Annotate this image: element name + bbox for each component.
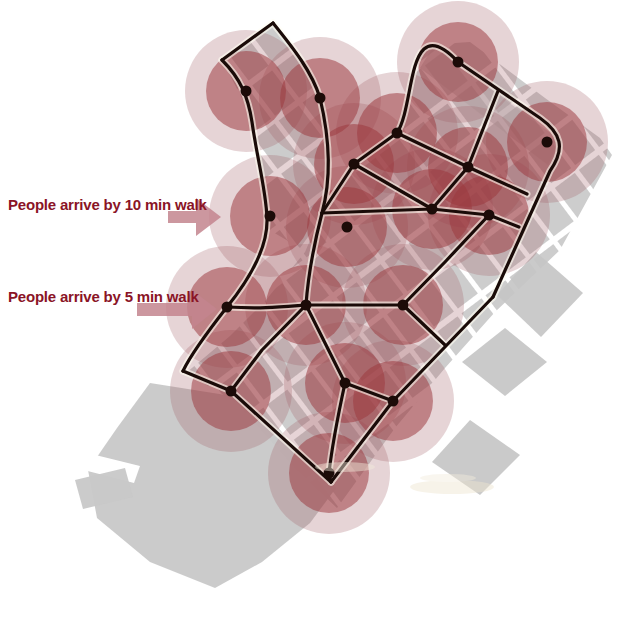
network-node-dot — [398, 300, 409, 311]
network-node-dot — [222, 302, 233, 313]
network-node-dot — [265, 211, 276, 222]
network-node-dot — [301, 300, 312, 311]
label-5min-walk: People arrive by 5 min walk — [8, 288, 199, 305]
network-node-dot — [226, 386, 237, 397]
network-node-dot — [315, 93, 326, 104]
network-node-dot — [463, 162, 474, 173]
walkability-diagram: People arrive by 10 min walk People arri… — [0, 0, 624, 623]
walkability-map-svg — [0, 0, 624, 623]
network-node-dot — [427, 204, 438, 215]
network-node-dot — [349, 159, 360, 170]
network-node-dot — [342, 222, 353, 233]
network-node-dot — [388, 396, 399, 407]
label-10min-walk: People arrive by 10 min walk — [8, 196, 207, 213]
network-node-dot — [484, 210, 495, 221]
network-node-dot — [340, 378, 351, 389]
network-node-dot — [392, 128, 403, 139]
network-node-dot — [453, 57, 464, 68]
base-map-east-diamond-2 — [462, 328, 547, 396]
network-node-dot — [542, 137, 553, 148]
network-node-dot — [241, 86, 252, 97]
